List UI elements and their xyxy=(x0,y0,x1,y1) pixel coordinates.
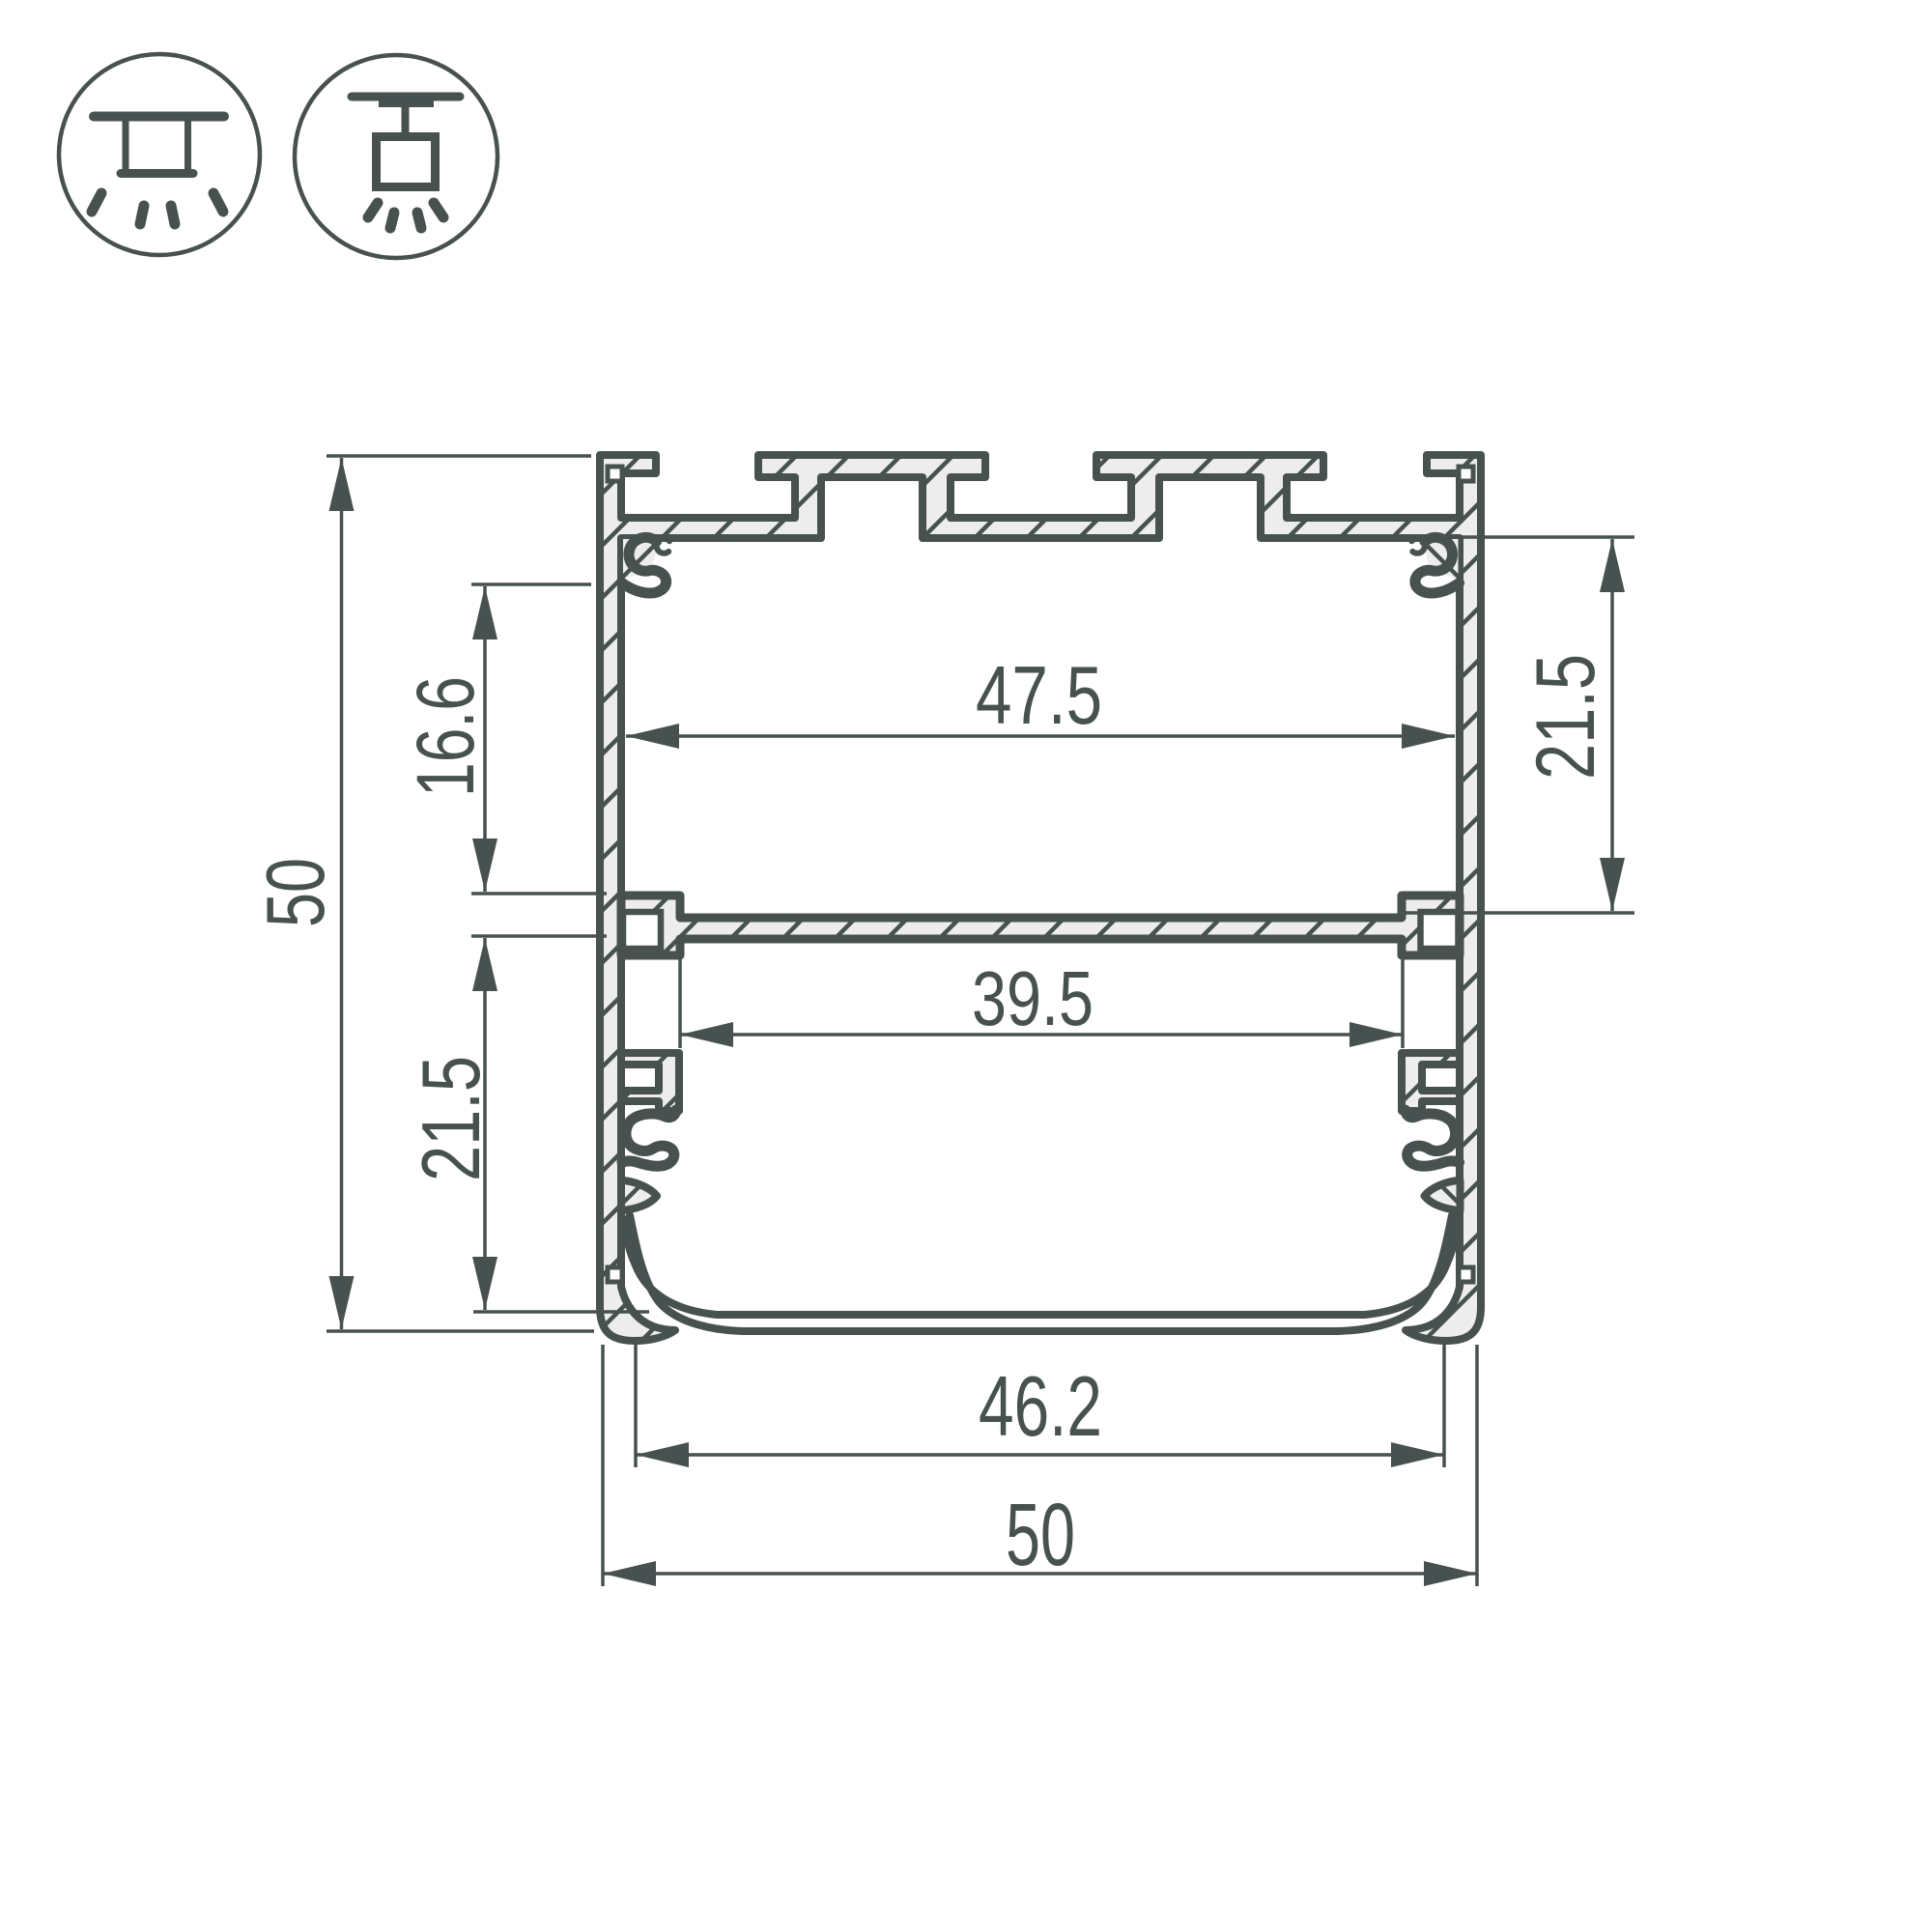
svg-text:46.2: 46.2 xyxy=(979,1358,1102,1454)
svg-text:50: 50 xyxy=(1006,1486,1075,1584)
svg-text:47.5: 47.5 xyxy=(976,650,1102,742)
svg-text:16.6: 16.6 xyxy=(400,676,491,797)
svg-text:21.5: 21.5 xyxy=(406,1056,497,1181)
svg-text:39.5: 39.5 xyxy=(972,955,1094,1041)
svg-text:21.5: 21.5 xyxy=(1520,654,1612,780)
svg-text:50: 50 xyxy=(250,858,342,927)
